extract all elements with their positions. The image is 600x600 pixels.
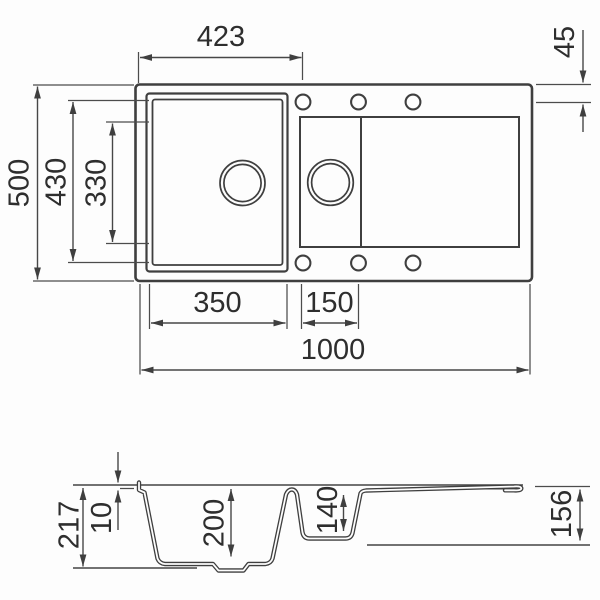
main-bowl-inner — [153, 100, 283, 266]
faucet-hole — [296, 95, 311, 110]
dim-200: 200 — [199, 489, 232, 557]
dim-10: 10 — [86, 452, 134, 534]
dim-156: 156 — [546, 490, 580, 541]
dim-217: 217 — [54, 488, 86, 567]
faucet-hole — [351, 256, 366, 271]
dim-label-10: 10 — [86, 502, 118, 534]
section-view: 217 10 200 140 156 — [54, 452, 591, 571]
dim-label-140: 140 — [312, 486, 344, 534]
half-bowl-and-drainer-panel — [300, 117, 519, 247]
dim-150: 150 — [302, 284, 359, 329]
faucet-hole — [296, 256, 311, 271]
half-drain-inner-ring — [312, 164, 350, 202]
main-bowl-drain — [220, 161, 265, 206]
main-drain-outer-ring — [220, 161, 265, 206]
dim-label-423: 423 — [197, 21, 245, 53]
sink-outer-edge — [136, 85, 533, 282]
dim-label-330: 330 — [81, 159, 113, 207]
dim-350: 350 — [150, 284, 288, 329]
faucet-hole — [406, 95, 421, 110]
main-bowl-outer — [147, 94, 288, 272]
half-drain-outer-ring — [308, 160, 354, 206]
dim-label-430: 430 — [41, 158, 73, 206]
dim-label-500: 500 — [4, 159, 36, 207]
dim-label-200: 200 — [199, 499, 231, 547]
faucet-hole — [351, 95, 366, 110]
technical-drawing-canvas: 423 45 500 430 330 — [0, 0, 600, 600]
dim-label-1000: 1000 — [301, 334, 366, 366]
dim-label-350: 350 — [193, 287, 241, 319]
dim-45: 45 — [536, 26, 591, 132]
main-drain-inner-ring — [224, 164, 261, 201]
dim-label-217: 217 — [54, 501, 86, 549]
faucet-hole — [406, 256, 421, 271]
top-view: 423 45 500 430 330 — [4, 21, 592, 375]
dim-423: 423 — [139, 21, 303, 83]
dim-140: 140 — [312, 486, 344, 534]
dim-label-150: 150 — [305, 287, 353, 319]
faucet-holes — [296, 95, 421, 271]
dim-label-45: 45 — [549, 26, 581, 58]
half-bowl-drain — [308, 160, 354, 206]
sink-technical-drawing: 423 45 500 430 330 — [0, 0, 600, 600]
dim-330: 330 — [81, 122, 150, 244]
dim-label-156: 156 — [546, 490, 578, 538]
